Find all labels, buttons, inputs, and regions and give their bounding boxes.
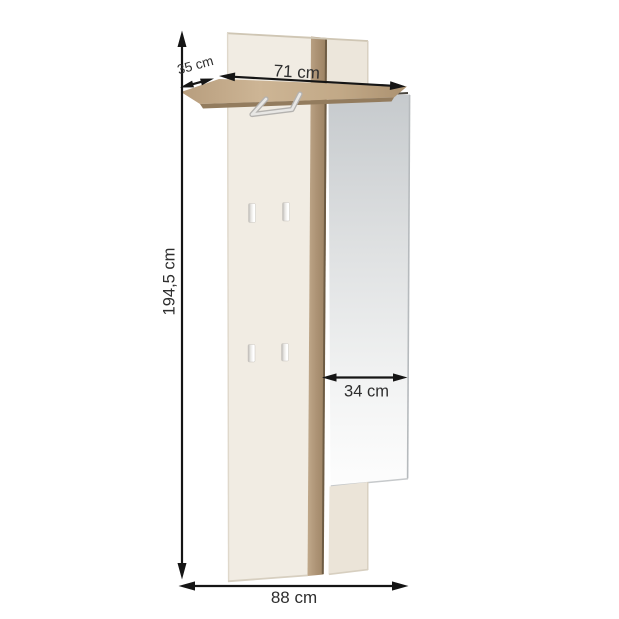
total-width-dimension: 88 cm xyxy=(179,581,409,607)
coat-hook xyxy=(249,204,256,223)
height-arrowhead-top xyxy=(178,31,187,48)
height-dimension: 194,5 cm xyxy=(161,31,187,580)
height-dimension-label: 194,5 cm xyxy=(161,248,179,316)
coat-rack-unit xyxy=(181,33,410,582)
diagram-canvas: 194,5 cm 35 cm 71 cm 34 cm 8 xyxy=(0,0,619,619)
coat-hook xyxy=(283,203,290,222)
shelf-width-dimension-label: 71 cm xyxy=(273,61,320,82)
back-panel xyxy=(227,33,311,582)
height-arrowhead-bottom xyxy=(178,563,187,580)
total-width-dimension-label: 88 cm xyxy=(271,588,317,607)
total-width-arrowhead-right xyxy=(392,581,409,590)
mirror xyxy=(329,95,411,487)
coat-hook xyxy=(282,344,289,362)
coat-hook xyxy=(248,345,255,363)
mirror-width-dimension-label: 34 cm xyxy=(344,383,389,401)
furniture-dimension-diagram: 194,5 cm 35 cm 71 cm 34 cm 8 xyxy=(0,0,619,619)
lower-right-panel xyxy=(329,482,369,575)
total-width-arrowhead-left xyxy=(179,581,196,590)
